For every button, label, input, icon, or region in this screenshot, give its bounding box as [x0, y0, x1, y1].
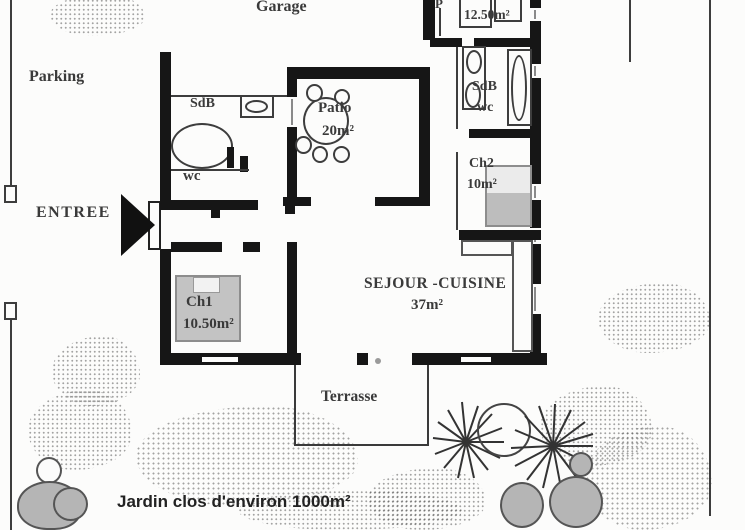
wall-terrace-door-stub: [357, 353, 368, 365]
upper-room-partial-label: P: [435, 0, 443, 11]
bathroom-left-label: SdB: [190, 97, 215, 112]
wall-hall-bottom-stub: [243, 242, 260, 252]
gate-post-marker: [4, 302, 17, 320]
pillow-icon: [193, 277, 220, 293]
wall-patio-bottom-right-stub: [375, 197, 430, 206]
chair-icon: [333, 146, 350, 163]
wall-bedroom2-left: [456, 152, 458, 230]
garage-label: Garage: [256, 0, 307, 16]
bathroom-right-label: SdB: [472, 80, 497, 95]
vegetation-speckle: [50, 0, 145, 36]
floor-plan: Garage P 12.50m² SdB wc Ch2 10m²: [0, 0, 745, 530]
bedroom1-label: Ch1: [186, 295, 213, 311]
entree-arrow-icon: [121, 194, 155, 256]
bathtub-icon: [511, 55, 527, 121]
wall-patio-bottom-left-stub: [283, 197, 311, 206]
sliding-door-opening: [461, 357, 491, 362]
vegetation-speckle: [598, 283, 710, 353]
wall-hall-sejour-upper: [285, 206, 295, 214]
door-dot: [375, 358, 381, 364]
upper-room-area-label: 12.50m²: [464, 8, 510, 22]
parking-label: Parking: [29, 69, 84, 86]
wall-wc-bottom: [160, 200, 258, 210]
patio-area-label: 20m²: [322, 124, 354, 140]
living-kitchen-area-label: 37m²: [411, 298, 443, 314]
window-opening: [202, 357, 238, 362]
fence-line-top: [629, 0, 631, 62]
shrub-icon: [36, 457, 62, 484]
toilet-left-label: wc: [183, 169, 201, 185]
toilet-right-label: wc: [477, 101, 493, 116]
living-kitchen-label: SEJOUR -CUISINE: [364, 276, 506, 292]
terrace-outline: [294, 365, 429, 446]
gate-post-marker: [4, 185, 17, 203]
boundary-line-left-upper: [10, 0, 12, 187]
entrance-label: ENTREE: [36, 205, 111, 222]
garage-door-line: [439, 8, 441, 36]
shrub-icon: [53, 487, 88, 521]
kitchen-counter-icon: [461, 240, 513, 256]
wall-bathroom-bedroom2-divider: [469, 129, 541, 138]
shrub-icon: [549, 476, 603, 528]
wall-garage-right: [423, 0, 435, 40]
patio-label: Patio: [318, 101, 351, 117]
wall-patio-right: [419, 67, 430, 205]
chair-icon: [312, 146, 328, 163]
wall-hall-bottom: [171, 242, 222, 252]
wall-bathtub-cap: [227, 147, 234, 168]
bed-icon: [485, 165, 532, 227]
shrub-icon: [500, 482, 544, 528]
wall-patio-top: [287, 67, 430, 79]
wall-upper-room-bottom: [430, 38, 462, 47]
bedroom1-area-label: 10.50m²: [183, 317, 234, 333]
shrub-icon: [569, 452, 593, 477]
window-line: [534, 186, 536, 198]
sink-basin-icon: [245, 100, 268, 113]
terrace-label: Terrasse: [321, 389, 377, 405]
kitchen-counter-icon: [512, 240, 533, 352]
wall-door-jamb: [211, 210, 220, 218]
boundary-line-left-lower: [10, 319, 12, 530]
wall-bedroom2-bottom: [459, 230, 541, 240]
wall-patio-left: [287, 67, 297, 198]
toilet-icon: [466, 50, 482, 74]
garden-label: Jardin clos d'environ 1000m²: [117, 493, 351, 511]
window-line: [291, 99, 293, 125]
window-line: [534, 287, 536, 311]
wall-bathroom-right-left: [456, 47, 458, 129]
chair-icon: [295, 136, 312, 154]
bedroom2-label: Ch2: [469, 157, 494, 172]
boundary-line-right: [709, 0, 711, 516]
window-line: [534, 10, 536, 19]
bedroom2-area-label: 10m²: [467, 178, 497, 193]
window-line: [534, 66, 536, 76]
bathtub-icon: [171, 123, 233, 169]
wall-bedroom1-sejour-divider: [287, 242, 297, 365]
